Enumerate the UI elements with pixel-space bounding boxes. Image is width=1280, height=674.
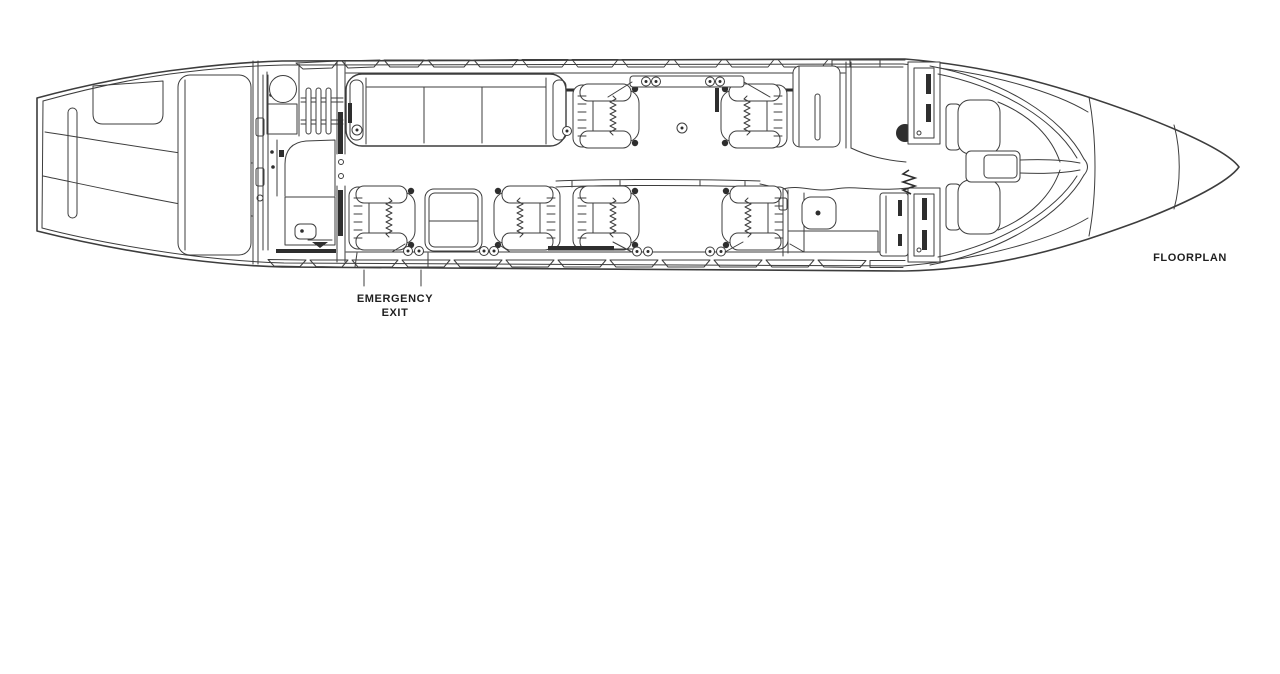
emergency-exit — [355, 253, 428, 286]
entry-door — [846, 62, 914, 162]
crew-seat — [958, 180, 1000, 234]
divan — [346, 74, 572, 146]
center-pedestal — [966, 151, 1020, 182]
seat-forward-facing — [573, 84, 639, 148]
emergency-exit-label-line1: EMERGENCY — [357, 293, 433, 305]
seat-aft-facing — [721, 84, 787, 148]
lav-vanity — [285, 140, 335, 196]
canopy-apex — [1084, 159, 1088, 175]
aft-lavatory — [256, 62, 345, 262]
cockpit-bulkhead — [903, 62, 940, 262]
seat-aft-facing — [722, 186, 788, 250]
emergency-exit-label-line2: EXIT — [382, 307, 409, 319]
conference-table — [425, 189, 482, 251]
lav-sink-cabinet — [267, 104, 297, 134]
labels: EMERGENCY EXIT FLOORPLAN — [357, 252, 1227, 319]
radome-joint — [1174, 125, 1179, 209]
galley-counter-edge — [783, 187, 908, 190]
lav-toilet — [285, 197, 335, 245]
lav-sink — [270, 76, 297, 103]
tail-section — [43, 61, 258, 264]
seat-aft-facing — [494, 186, 560, 250]
cockpit — [930, 66, 1088, 265]
floorplan-diagram: EMERGENCY EXIT FLOORPLAN — [0, 0, 1280, 674]
windshield-base — [1089, 97, 1095, 236]
seat-forward-facing — [573, 186, 639, 250]
galley-tall-cabinet — [880, 193, 908, 256]
floorplan-label: FLOORPLAN — [1153, 252, 1227, 264]
galley — [779, 187, 908, 256]
floorplan-svg: EMERGENCY EXIT FLOORPLAN — [0, 0, 1280, 674]
tail-access-slot — [68, 108, 77, 218]
emergency-exit-ticks — [364, 270, 421, 286]
tail-panel — [93, 81, 163, 124]
baggage-door — [178, 75, 251, 255]
crew-seat — [958, 100, 1000, 154]
seat-forward-facing — [349, 186, 415, 250]
aft-bulkhead-frame — [253, 61, 258, 264]
